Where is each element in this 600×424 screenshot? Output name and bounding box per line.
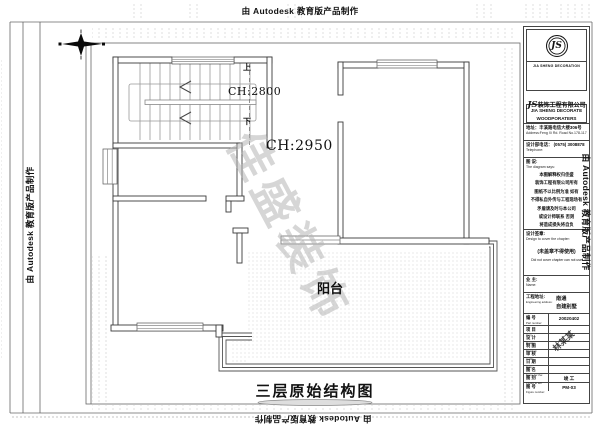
company-logo: JS JIA SHENG DECORATION — [526, 29, 587, 91]
plot-stamp-top: 由 Autodesk 教育版产品制作 — [0, 5, 600, 17]
ceiling-height-main: CH:2950 — [266, 138, 333, 154]
stair-direction-arrow-up — [180, 81, 191, 93]
ceiling-height-stair: CH:2800 — [228, 85, 281, 98]
row-drawing-type: 图 别Figure to tell: 竣 工 — [524, 373, 589, 382]
balcony-label: 阳台 — [300, 278, 360, 297]
plot-stamp-left: 由 Autodesk 教育版产品制作 — [24, 150, 36, 300]
diagram-notes-body: 本图解释权归佳盛 装饰工程有限公司所有 图纸不以比例为准 如有 不得私自外传与工… — [526, 171, 587, 229]
project-site-section: 工程地址: Engineering address: 南通 自建别墅 — [524, 292, 589, 313]
stair-direction-arrow-down — [180, 112, 191, 124]
company-name-cn: JS装饰工程有限公司 — [524, 91, 589, 104]
company-logo-icon: JS — [546, 35, 568, 57]
row-item: 项 目Item: — [524, 325, 589, 333]
row-date: 日 期Date: — [524, 357, 589, 365]
company-name-en: JIA SHENG DECORATE WOODPORATERS — [526, 104, 587, 123]
staircase — [129, 57, 256, 145]
logo-monogram: JS — [551, 41, 562, 51]
project-site-value: 南通 自建别墅 — [556, 294, 587, 312]
stair-down-label: 下 — [243, 116, 251, 127]
plot-stamp-right: 由 Autodesk 教育版产品制作 — [580, 137, 592, 287]
stair-up-label: 上 — [243, 62, 251, 73]
row-part-number: 编 号Part number: 20020402 — [524, 313, 589, 325]
row-drawing-number: 图 号Figure number: PM-03 — [524, 382, 589, 391]
cad-sheet: 佳盛装饰 由 Autodesk 教育版产品制作 由 Autodesk 教育版产品… — [0, 0, 600, 424]
logo-caption: JIA SHENG DECORATION — [527, 61, 586, 68]
balcony-outline — [219, 241, 497, 371]
drawing-title: 三层原始结构图 — [240, 380, 390, 401]
row-drawing-name: 图 名Name for the: — [524, 365, 589, 373]
floor-plan-canvas — [0, 0, 600, 424]
plot-stamp-bottom: 由 Autodesk 教育版产品制作 — [228, 413, 398, 424]
